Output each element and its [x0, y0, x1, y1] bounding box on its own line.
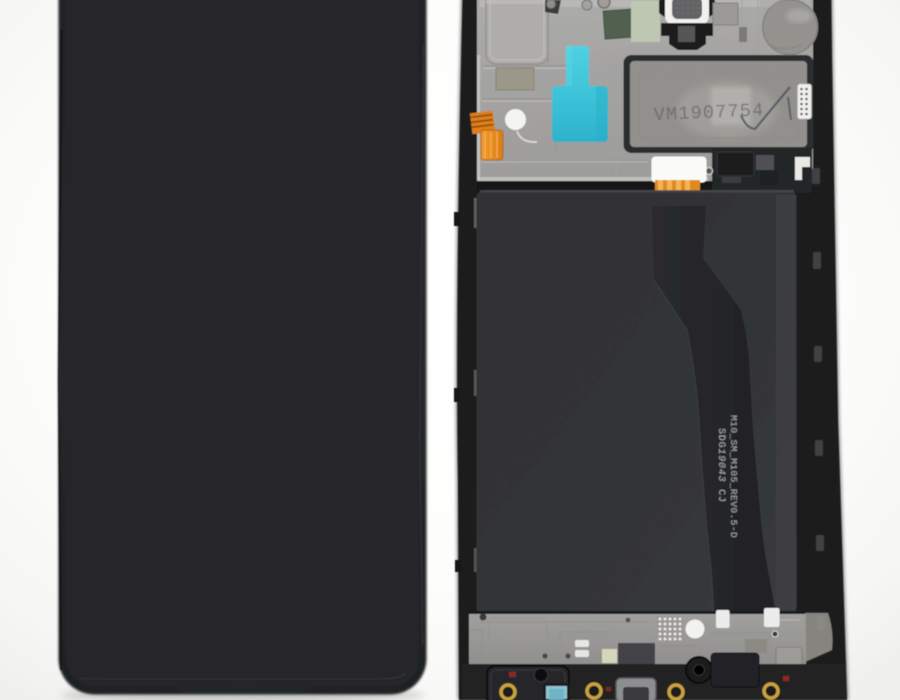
svg-text:M10_SM_M105_REV0.5-D: M10_SM_M105_REV0.5-D	[728, 415, 739, 538]
svg-text:SDG19043 CJ: SDG19043 CJ	[715, 428, 726, 503]
